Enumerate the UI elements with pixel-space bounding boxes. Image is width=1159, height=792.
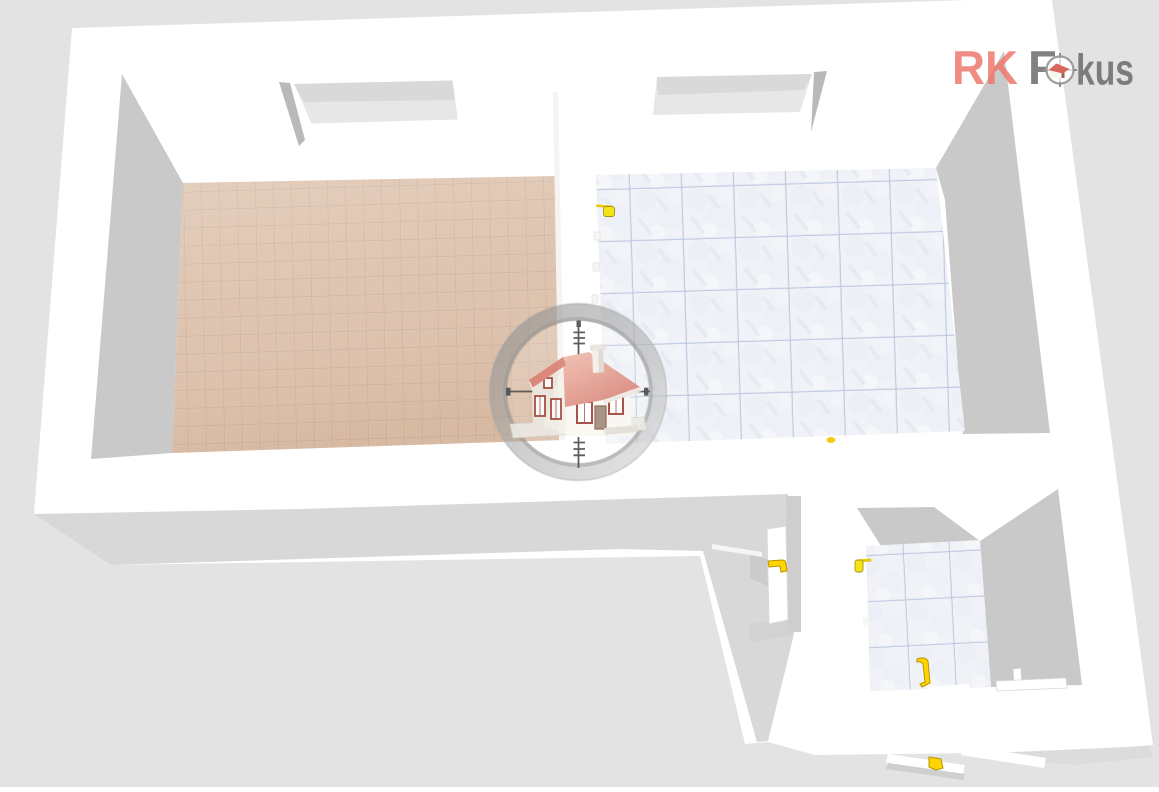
svg-text:kus: kus (1076, 46, 1134, 95)
svg-text:RK: RK (952, 41, 1018, 94)
